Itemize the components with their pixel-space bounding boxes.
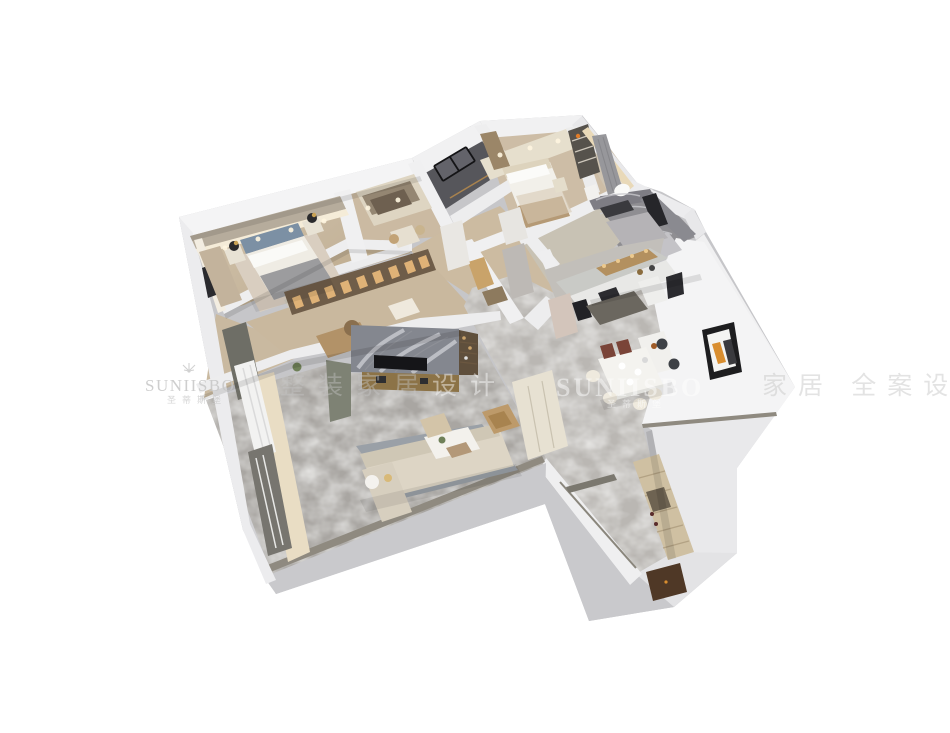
svg-text:SUNIISBO: SUNIISBO — [556, 373, 704, 402]
svg-text:家居 全案设计: 家居 全案设计 — [762, 372, 950, 400]
svg-text:圣蒂斯堡: 圣蒂斯堡 — [167, 394, 227, 405]
svg-text:SUNIISBO: SUNIISBO — [145, 376, 235, 395]
svg-text:整装家居: 整装家居 — [280, 372, 432, 400]
svg-text:圣蒂斯堡: 圣蒂斯堡 — [607, 398, 667, 409]
svg-text:设计: 设计 — [432, 372, 508, 400]
